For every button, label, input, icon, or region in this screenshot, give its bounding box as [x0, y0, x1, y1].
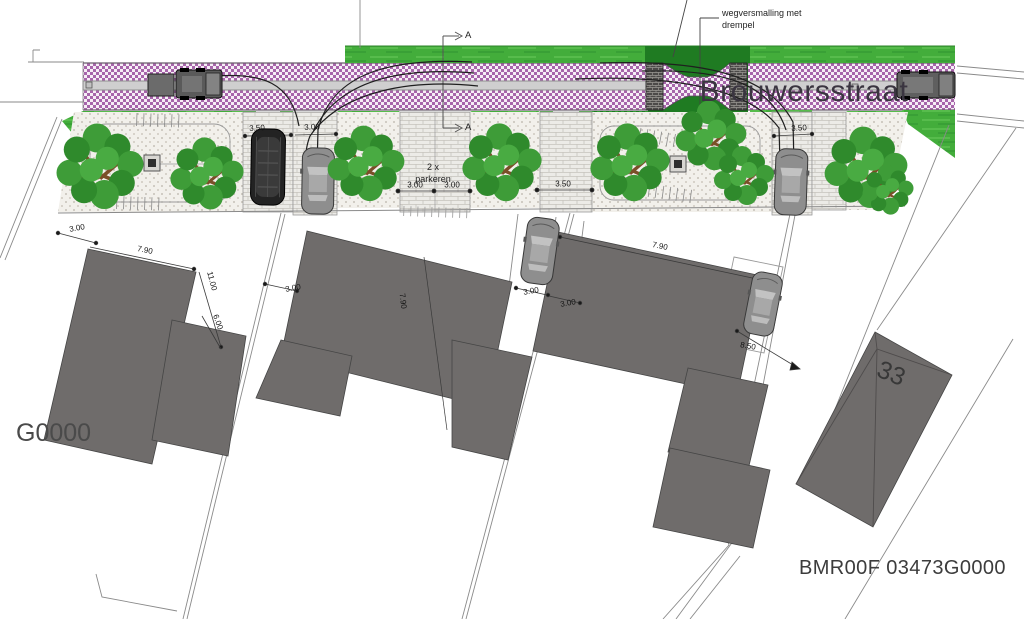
dimension-label: 3.00	[407, 181, 423, 190]
site-plan: Brouwersstraat wegversmalling met drempe…	[0, 0, 1024, 619]
road-narrowing-note-line2: drempel	[722, 20, 755, 30]
dimension-label: 3.50	[555, 180, 571, 189]
building-3	[533, 232, 770, 548]
building-2	[256, 231, 532, 460]
dimension-label: 3.00	[444, 181, 460, 190]
dimension-label: 3.00	[304, 122, 320, 132]
dimension-label: 3.50	[791, 123, 807, 133]
speed-bump-band	[646, 63, 663, 110]
parcel-label-right: BMR00F 03473G0000	[799, 557, 1006, 580]
road-narrowing-note-line1: wegversmalling met	[722, 8, 802, 18]
section-marker-bottom: A	[465, 122, 471, 133]
dimension-label: 7.90	[398, 293, 409, 310]
parking-note-line1: 2 x	[427, 162, 439, 172]
drain-grate	[670, 156, 686, 172]
building-4	[796, 332, 952, 527]
dimension-label: 3.50	[249, 123, 265, 133]
street-name-label: Brouwersstraat	[700, 75, 909, 109]
parking-bay	[540, 112, 592, 212]
parcel-label-left: G0000	[16, 419, 91, 448]
drain-grate	[144, 155, 160, 171]
section-marker-top: A	[465, 30, 471, 41]
